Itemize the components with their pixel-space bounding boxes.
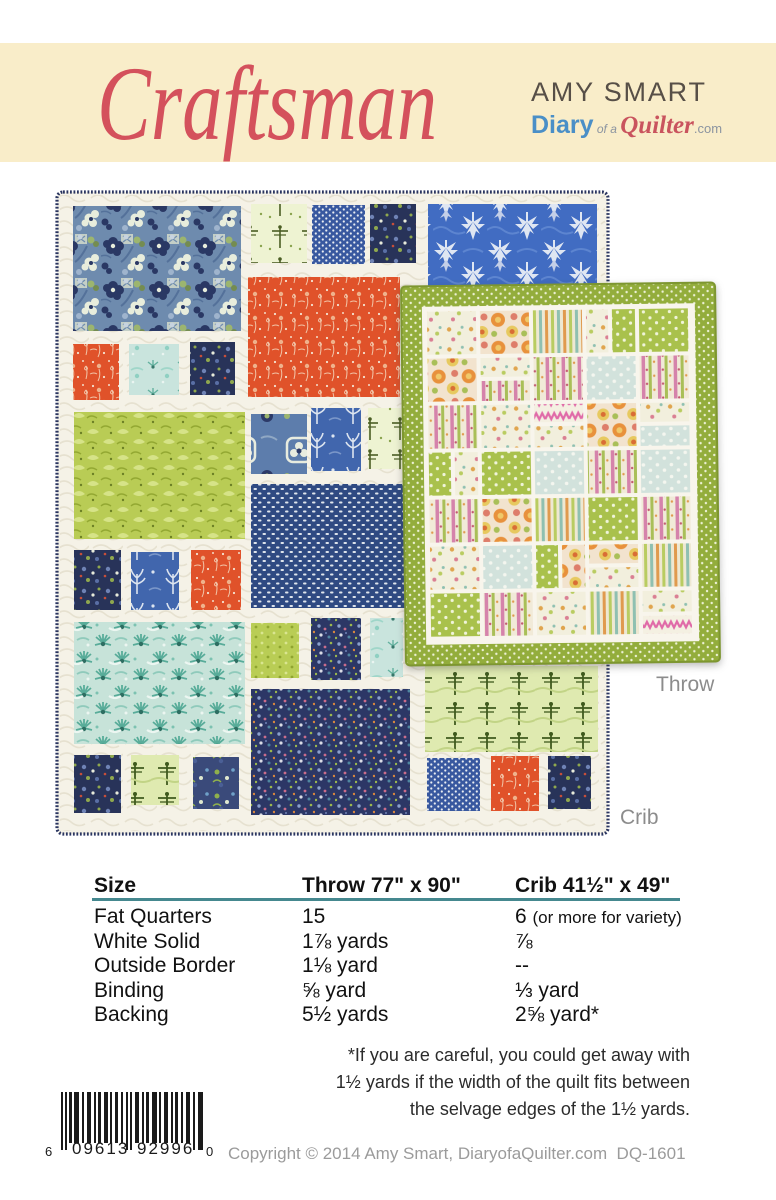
svg-text:0: 0 [206,1144,213,1159]
svg-text:92996: 92996 [137,1139,194,1158]
svg-text:09613: 09613 [72,1139,129,1158]
svg-text:6: 6 [45,1144,52,1159]
